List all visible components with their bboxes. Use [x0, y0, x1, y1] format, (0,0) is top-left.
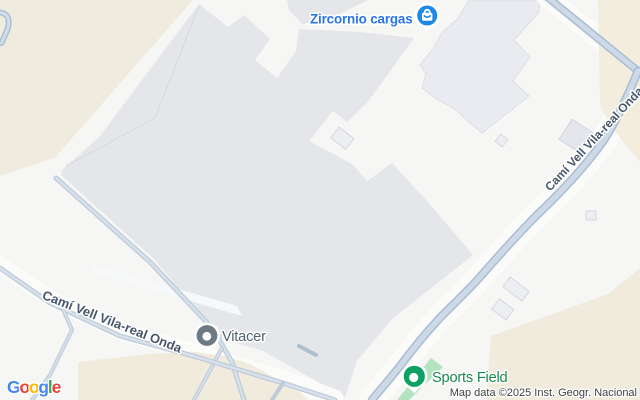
svg-text:Camí Vell Vila-real Onda: Camí Vell Vila-real Onda: [40, 287, 184, 356]
svg-text:Vitacer: Vitacer: [222, 329, 266, 345]
svg-text:Google: Google: [7, 377, 62, 397]
svg-text:Map data ©2025 Inst. Geogr. Na: Map data ©2025 Inst. Geogr. Nacional: [450, 387, 637, 399]
svg-text:Zircornio cargas: Zircornio cargas: [310, 12, 413, 27]
svg-text:Sports Field: Sports Field: [432, 370, 508, 386]
